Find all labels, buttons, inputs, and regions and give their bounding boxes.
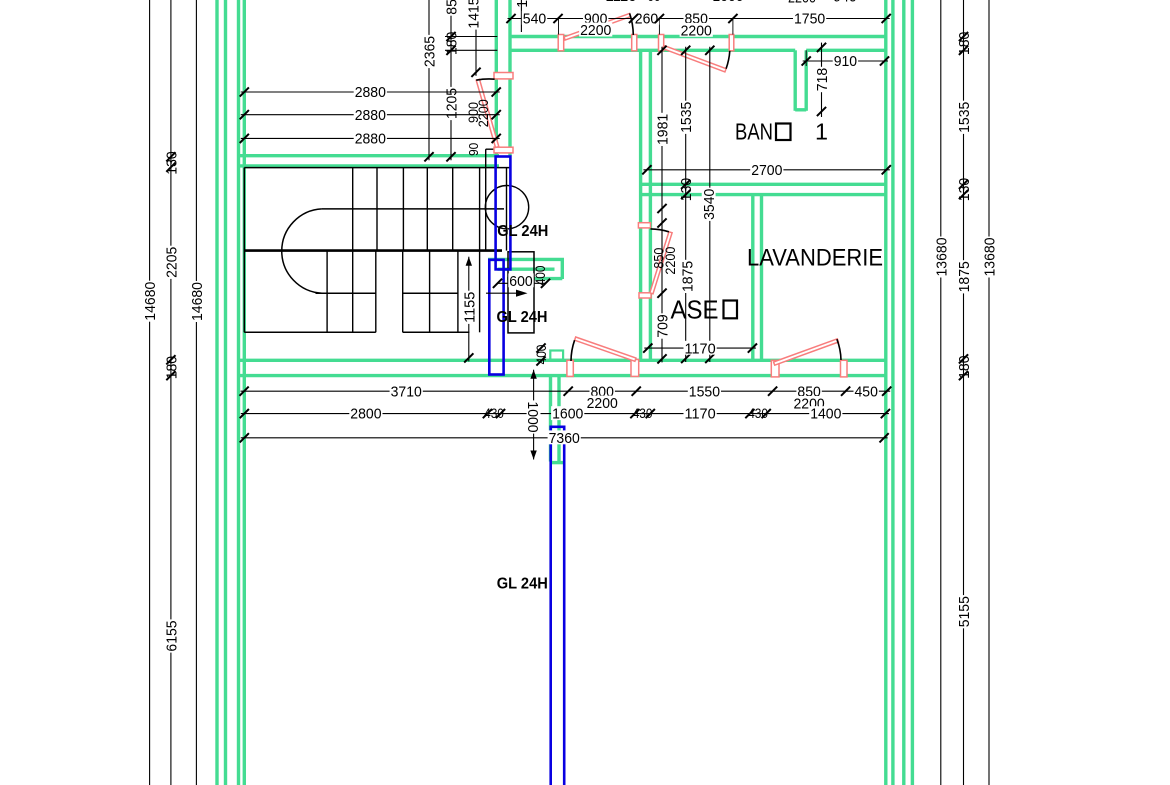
svg-text:00: 00 — [648, 0, 661, 4]
svg-text:GL 24H: GL 24H — [497, 309, 548, 326]
svg-text:2800: 2800 — [350, 406, 381, 423]
svg-text:2880: 2880 — [355, 107, 386, 124]
svg-text:14680: 14680 — [189, 282, 206, 321]
svg-text:2200: 2200 — [476, 99, 491, 127]
svg-text:3540: 3540 — [701, 189, 718, 220]
svg-text:2200: 2200 — [788, 0, 816, 6]
svg-text:1110: 1110 — [605, 0, 636, 5]
svg-text:1: 1 — [815, 119, 828, 145]
svg-text:180: 180 — [514, 0, 531, 8]
svg-text:2205: 2205 — [163, 247, 180, 278]
svg-text:600: 600 — [509, 273, 532, 290]
svg-text:90: 90 — [466, 143, 481, 156]
svg-text:2200: 2200 — [681, 22, 712, 39]
svg-text:709: 709 — [654, 314, 671, 337]
svg-text:7360: 7360 — [549, 430, 580, 447]
svg-text:2200: 2200 — [580, 22, 611, 39]
svg-text:1170: 1170 — [685, 340, 716, 357]
svg-text:718: 718 — [814, 68, 831, 91]
svg-text:GL 24H: GL 24H — [497, 576, 548, 593]
svg-text:13680: 13680 — [933, 238, 950, 277]
svg-text:1170: 1170 — [685, 406, 716, 423]
svg-text:1981: 1981 — [654, 114, 671, 145]
svg-text:1750: 1750 — [794, 10, 825, 27]
svg-text:1875: 1875 — [679, 261, 696, 292]
svg-text:2200: 2200 — [587, 395, 618, 412]
svg-text:260: 260 — [635, 10, 658, 27]
svg-text:GL 24H: GL 24H — [497, 223, 548, 240]
svg-text:2880: 2880 — [355, 131, 386, 148]
svg-text:400: 400 — [533, 265, 548, 285]
svg-text:130: 130 — [678, 178, 695, 201]
svg-text:3710: 3710 — [391, 383, 422, 400]
svg-text:450: 450 — [855, 383, 878, 400]
svg-text:1600: 1600 — [552, 406, 583, 423]
svg-text:2365: 2365 — [421, 36, 438, 67]
svg-text:2700: 2700 — [751, 162, 782, 179]
svg-text:1400: 1400 — [810, 406, 841, 423]
svg-text:14680: 14680 — [142, 282, 159, 321]
svg-text:2200: 2200 — [663, 247, 678, 275]
svg-text:1415: 1415 — [465, 0, 482, 29]
svg-text:ASE: ASE — [671, 295, 719, 325]
svg-text:5155: 5155 — [956, 596, 973, 627]
svg-text:540: 540 — [523, 10, 546, 27]
svg-text:1000: 1000 — [524, 401, 541, 432]
svg-text:BAN: BAN — [735, 119, 773, 145]
svg-text:LAVANDERIE: LAVANDERIE — [747, 244, 883, 271]
svg-text:1875: 1875 — [956, 261, 973, 292]
svg-text:1535: 1535 — [678, 102, 695, 133]
svg-text:130: 130 — [956, 178, 973, 201]
svg-text:1155: 1155 — [461, 292, 478, 323]
svg-text:2880: 2880 — [355, 84, 386, 101]
svg-text:13680: 13680 — [981, 238, 998, 277]
svg-text:910: 910 — [834, 53, 857, 70]
svg-text:850: 850 — [443, 0, 460, 15]
svg-text:1000: 1000 — [712, 0, 743, 5]
svg-text:1535: 1535 — [956, 102, 973, 133]
svg-text:1550: 1550 — [689, 383, 720, 400]
svg-text:6155: 6155 — [163, 620, 180, 651]
svg-text:940: 940 — [833, 0, 856, 5]
